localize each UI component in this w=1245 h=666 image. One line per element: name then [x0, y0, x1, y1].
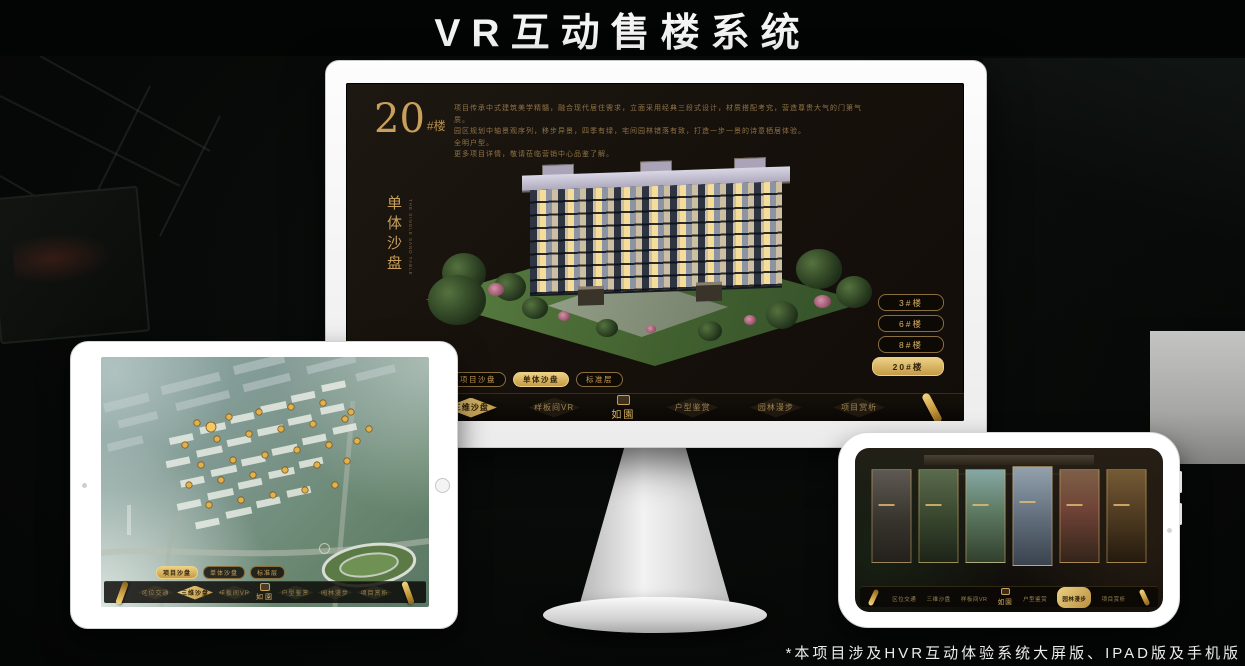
nav-item-showroom-vr[interactable]: 样板间VR: [528, 398, 580, 418]
gallery-card-autumn[interactable]: [1060, 469, 1100, 563]
phone-side-button: [1179, 503, 1182, 525]
hero-subtitle-en: THE SINGLE SAND TABLE: [408, 199, 413, 276]
background-plaque: [0, 186, 150, 345]
building-button-3[interactable]: 3#楼: [878, 294, 944, 311]
building-button-20[interactable]: 20#楼: [872, 357, 944, 376]
view-tabs: 项目沙盘 单体沙盘 标准层: [450, 372, 623, 387]
scroll-brush-icon[interactable]: [868, 588, 880, 606]
nav-item-3d-sandtable[interactable]: 三维沙盘: [177, 586, 213, 600]
logo-seal-icon: [1001, 588, 1010, 595]
logo-seal-icon: [617, 395, 630, 405]
scroll-brush-icon[interactable]: [921, 391, 943, 421]
tab-project-sandtable[interactable]: 项目沙盘: [450, 372, 506, 387]
tablet: 项目沙盘 单体沙盘 标准层 区位交通 三维沙盘 样板间VR 如園 户型鉴赏 园林…: [70, 341, 458, 629]
hero-subtitle: 单体沙盘: [384, 195, 405, 275]
gallery-card-interior[interactable]: [1107, 469, 1147, 563]
description-line: 全明户型。: [454, 138, 866, 150]
phone-camera-icon: [1167, 528, 1172, 533]
nav-item-3d-sandtable[interactable]: 三维沙盘: [927, 588, 951, 606]
nav-item-garden-walk[interactable]: 园林漫步: [750, 398, 802, 418]
tablet-main-nav: 区位交通 三维沙盘 样板间VR 如園 户型鉴赏 园林漫步 项目赏析: [104, 581, 426, 603]
brand-logo[interactable]: 如園: [256, 583, 274, 602]
tab-project-sandtable[interactable]: 项目沙盘: [156, 566, 198, 579]
building-number-unit: #楼: [427, 117, 446, 134]
gallery-card-garden[interactable]: [919, 469, 959, 563]
brand-logo[interactable]: 如園: [998, 588, 1013, 606]
logo-seal-icon: [260, 583, 270, 591]
building-number: 20: [374, 99, 425, 139]
page-title: VR互动售楼系统: [0, 2, 1245, 58]
model-building: [518, 148, 794, 300]
scroll-brush-icon[interactable]: [115, 580, 129, 605]
scene-gallery: [872, 469, 1147, 566]
nav-item-location[interactable]: 区位交通: [138, 586, 174, 600]
brand-logo[interactable]: 如園: [611, 395, 635, 421]
phone-side-button: [1179, 471, 1182, 493]
phone: 区位交通 三维沙盘 样板间VR 如園 户型鉴赏 园林漫步 项目赏析: [838, 432, 1180, 628]
nav-item-garden-walk[interactable]: 园林漫步: [1057, 587, 1091, 608]
compass-icon: [319, 543, 330, 554]
nav-item-project-gallery[interactable]: 项目赏析: [833, 398, 885, 418]
tablet-bottom-bar: 项目沙盘 单体沙盘 标准层 区位交通 三维沙盘 样板间VR 如園 户型鉴赏 园林…: [104, 566, 426, 603]
tablet-view-tabs: 项目沙盘 单体沙盘 标准层: [156, 566, 426, 579]
building-button-6[interactable]: 6#楼: [878, 315, 944, 332]
phone-main-nav: 区位交通 三维沙盘 样板间VR 如園 户型鉴赏 园林漫步 项目赏析: [860, 586, 1158, 607]
nav-item-floorplans[interactable]: 户型鉴赏: [667, 398, 719, 418]
description-line: 项目传承中式建筑美学精髓，融合现代居住需求，立面采用经典三段式设计，材质搭配考究…: [454, 103, 866, 126]
tab-standard-floor[interactable]: 标准层: [576, 372, 623, 387]
nav-item-floorplans[interactable]: 户型鉴赏: [278, 586, 314, 600]
page: VR互动售楼系统 20#楼 单体沙盘 THE SINGLE SAND TABLE…: [0, 0, 1245, 666]
description-line: 园区规划中轴景观序列，移步异景，四季有绿，宅间园林错落有致，打造一步一景的诗意栖…: [454, 126, 866, 138]
phone-screen: 区位交通 三维沙盘 样板间VR 如園 户型鉴赏 园林漫步 项目赏析: [855, 448, 1163, 612]
building-button-8[interactable]: 8#楼: [878, 336, 944, 353]
nav-item-showroom-vr[interactable]: 样板间VR: [961, 588, 988, 606]
gallery-card-building[interactable]: [1013, 466, 1053, 566]
gallery-card-courtyard[interactable]: [872, 469, 912, 563]
nav-item-project-gallery[interactable]: 项目赏析: [357, 586, 393, 600]
tablet-screen: 项目沙盘 单体沙盘 标准层 区位交通 三维沙盘 样板间VR 如園 户型鉴赏 园林…: [101, 357, 429, 607]
tab-single-sandtable[interactable]: 单体沙盘: [513, 372, 569, 387]
road-label: [127, 505, 131, 535]
nav-item-floorplans[interactable]: 户型鉴赏: [1023, 588, 1047, 606]
footnote: *本项目涉及HVR互动体验系统大屏版、IPAD版及手机版: [786, 642, 1241, 663]
tablet-home-button[interactable]: [435, 478, 450, 493]
building-hero-title: 20#楼: [374, 99, 446, 139]
tab-single-sandtable[interactable]: 单体沙盘: [203, 566, 245, 579]
nav-item-location[interactable]: 区位交通: [892, 588, 916, 606]
background-aerial: [983, 58, 1245, 318]
nav-item-garden-walk[interactable]: 园林漫步: [317, 586, 353, 600]
scroll-brush-icon[interactable]: [1139, 588, 1151, 606]
nav-item-project-gallery[interactable]: 项目赏析: [1102, 588, 1126, 606]
tablet-camera-icon: [82, 483, 87, 488]
gallery-card-landscape[interactable]: [966, 469, 1006, 563]
building-selector: 3#楼 6#楼 8#楼 20#楼: [872, 294, 944, 376]
gate-silhouette: [924, 455, 1094, 465]
monitor-base: [543, 597, 767, 633]
monitor-stand: [580, 445, 730, 603]
scroll-brush-icon[interactable]: [401, 580, 415, 605]
tab-standard-floor[interactable]: 标准层: [250, 566, 285, 579]
nav-item-showroom-vr[interactable]: 样板间VR: [217, 586, 253, 600]
